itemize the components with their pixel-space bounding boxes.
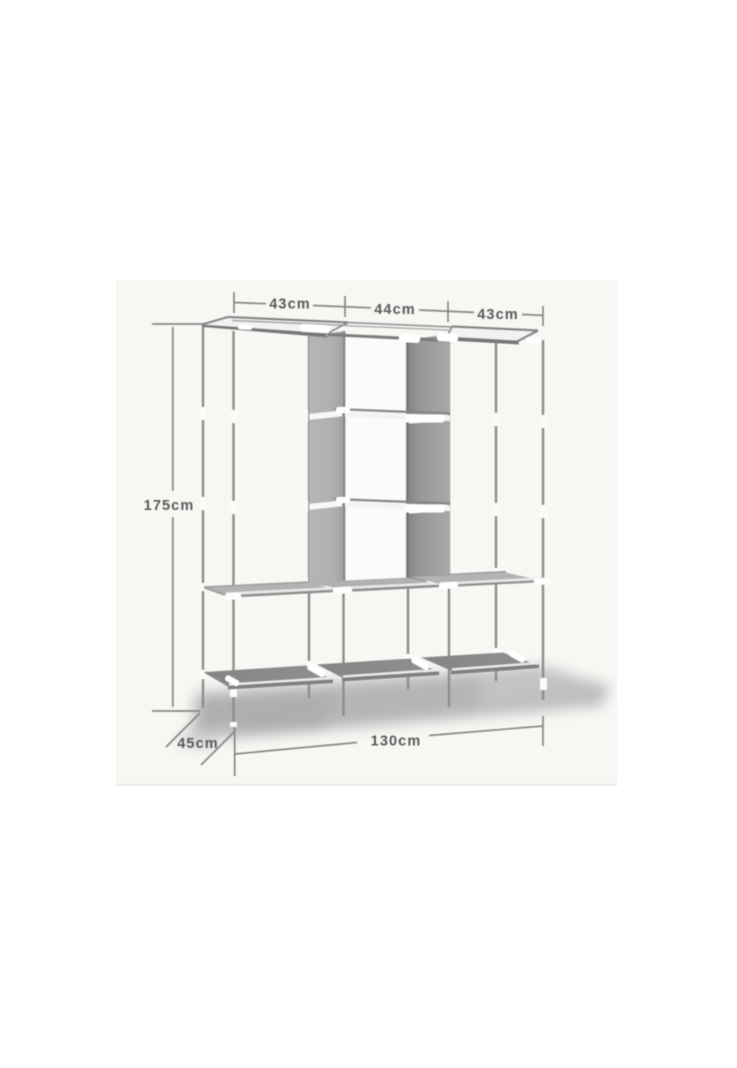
svg-text:45cm: 45cm <box>177 736 219 752</box>
svg-text:43cm: 43cm <box>269 297 311 313</box>
svg-text:175cm: 175cm <box>144 498 195 514</box>
svg-text:130cm: 130cm <box>371 734 422 750</box>
svg-text:44cm: 44cm <box>374 302 416 318</box>
svg-text:43cm: 43cm <box>477 307 519 323</box>
